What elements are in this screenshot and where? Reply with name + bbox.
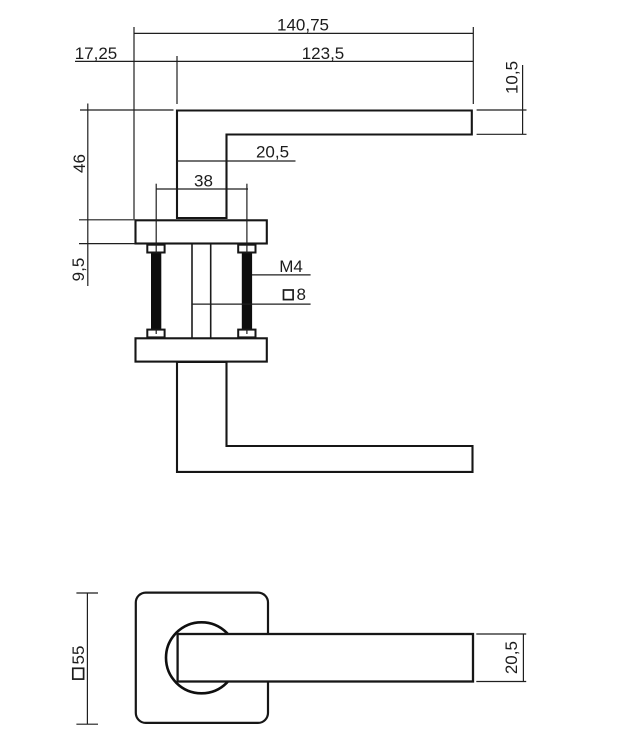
svg-text:38: 38	[194, 172, 213, 191]
svg-text:17,25: 17,25	[75, 44, 118, 63]
svg-text:8: 8	[297, 285, 306, 304]
svg-text:46: 46	[70, 154, 89, 173]
svg-text:123,5: 123,5	[302, 44, 345, 63]
svg-text:10,5: 10,5	[503, 61, 522, 94]
svg-text:M4: M4	[279, 257, 303, 276]
svg-text:20,5: 20,5	[256, 143, 289, 162]
svg-text:9,5: 9,5	[69, 258, 88, 282]
svg-text:55: 55	[69, 646, 88, 665]
svg-text:140,75: 140,75	[277, 16, 329, 35]
svg-text:20,5: 20,5	[502, 641, 521, 674]
